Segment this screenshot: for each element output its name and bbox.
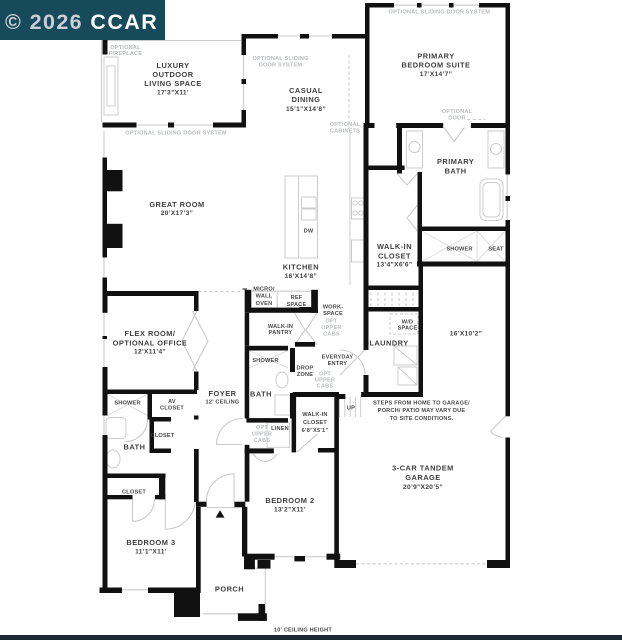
svg-text:SPACE: SPACE (287, 302, 307, 308)
svg-text:20’X17’3”: 20’X17’3” (161, 210, 193, 217)
svg-text:ZONE: ZONE (297, 372, 313, 378)
svg-text:SHOWER: SHOWER (114, 401, 140, 407)
svg-text:OPTIONAL SLIDING DOOR SYSTEM: OPTIONAL SLIDING DOOR SYSTEM (389, 10, 491, 16)
svg-text:BATH: BATH (124, 443, 146, 452)
svg-text:WALK-IN: WALK-IN (268, 324, 293, 330)
svg-text:SHOWER: SHOWER (252, 358, 278, 364)
svg-text:13’4”X6’6”: 13’4”X6’6” (377, 262, 413, 269)
svg-text:UPPER: UPPER (321, 325, 341, 331)
svg-text:DINING: DINING (292, 95, 321, 104)
svg-text:MICRO/: MICRO/ (253, 286, 275, 292)
svg-text:WALK-IN: WALK-IN (302, 412, 327, 418)
svg-text:FIREPLACE: FIREPLACE (109, 51, 143, 57)
svg-text:© 2026 CCAR: © 2026 CCAR (5, 10, 158, 34)
svg-text:BEDROOM SUITE: BEDROOM SUITE (402, 60, 471, 69)
svg-text:10’ CEILING HEIGHT: 10’ CEILING HEIGHT (274, 628, 332, 634)
svg-text:13’2”X11’: 13’2”X11’ (274, 507, 306, 514)
svg-text:BEDROOM 3: BEDROOM 3 (126, 538, 175, 547)
svg-text:12’X11’4”: 12’X11’4” (134, 349, 166, 356)
svg-text:PORCH: PORCH (215, 585, 244, 594)
svg-text:KITCHEN: KITCHEN (283, 263, 319, 272)
svg-text:WORK-: WORK- (323, 305, 344, 311)
svg-text:12’ CEILING: 12’ CEILING (206, 400, 240, 406)
svg-text:DOOR SYSTEM: DOOR SYSTEM (259, 63, 303, 69)
svg-text:FOYER: FOYER (209, 389, 237, 398)
svg-text:CABS: CABS (317, 384, 334, 390)
svg-text:PRIMARY: PRIMARY (437, 157, 474, 166)
svg-text:PORCH/ PATIO MAY VARY DUE: PORCH/ PATIO MAY VARY DUE (378, 408, 466, 414)
svg-text:OPTIONAL SLIDING: OPTIONAL SLIDING (252, 56, 308, 62)
svg-text:OPTIONAL OFFICE: OPTIONAL OFFICE (113, 338, 188, 347)
svg-text:OPTIONAL: OPTIONAL (442, 109, 473, 115)
svg-text:SEAT: SEAT (488, 247, 504, 253)
svg-text:ENTRY: ENTRY (328, 361, 348, 367)
svg-text:LUXURY: LUXURY (156, 61, 189, 70)
svg-text:OPTIONAL SLIDING DOOR SYSTEM: OPTIONAL SLIDING DOOR SYSTEM (125, 131, 227, 137)
svg-text:BEDROOM 2: BEDROOM 2 (265, 496, 314, 505)
svg-text:CABS: CABS (323, 332, 340, 338)
svg-text:OPTIONAL: OPTIONAL (330, 122, 361, 128)
svg-text:OUTDOOR: OUTDOOR (152, 70, 193, 79)
svg-text:STEPS FROM HOME TO GARAGE/: STEPS FROM HOME TO GARAGE/ (373, 401, 470, 407)
svg-text:UP: UP (347, 406, 355, 412)
svg-text:UPPER: UPPER (252, 432, 272, 438)
svg-text:CLOSET: CLOSET (303, 420, 327, 426)
svg-text:DOOR: DOOR (448, 116, 466, 122)
svg-text:BATH: BATH (250, 390, 272, 399)
svg-text:3-CAR TANDEM: 3-CAR TANDEM (392, 464, 454, 473)
svg-text:LAUNDRY: LAUNDRY (369, 339, 408, 348)
svg-text:15’1”X14’8”: 15’1”X14’8” (286, 106, 326, 113)
svg-text:CLOSET: CLOSET (151, 433, 175, 439)
svg-text:DW: DW (304, 229, 314, 235)
svg-text:OPT: OPT (256, 425, 268, 431)
svg-text:SPACE: SPACE (323, 311, 343, 317)
svg-text:REF: REF (291, 295, 303, 301)
svg-text:6’8”X5’1”: 6’8”X5’1” (302, 428, 329, 434)
svg-text:LIVING SPACE: LIVING SPACE (144, 79, 202, 88)
svg-text:BATH: BATH (445, 166, 467, 175)
svg-text:17’3”X11’: 17’3”X11’ (157, 89, 189, 96)
svg-text:DROP: DROP (297, 366, 314, 372)
svg-text:CASUAL: CASUAL (289, 86, 323, 95)
svg-text:11’1”X11’: 11’1”X11’ (135, 549, 167, 556)
svg-text:CLOSET: CLOSET (378, 251, 411, 260)
svg-text:TO SITE CONDITIONS.: TO SITE CONDITIONS. (390, 416, 454, 422)
svg-text:CABS: CABS (254, 438, 271, 444)
svg-text:16’X14’8”: 16’X14’8” (285, 273, 317, 280)
svg-text:PRIMARY: PRIMARY (417, 51, 454, 60)
svg-text:20’9”X20’5”: 20’9”X20’5” (403, 484, 443, 491)
svg-text:SPACE: SPACE (398, 326, 418, 332)
svg-text:CLOSET: CLOSET (122, 490, 146, 496)
svg-text:WALK-IN: WALK-IN (377, 242, 412, 251)
svg-text:LINEN: LINEN (271, 426, 289, 432)
svg-text:GREAT ROOM: GREAT ROOM (149, 200, 204, 209)
svg-text:OVEN: OVEN (256, 301, 273, 307)
svg-text:CLOSET: CLOSET (160, 405, 184, 411)
svg-text:GARAGE: GARAGE (405, 473, 440, 482)
svg-text:16’X10’2”: 16’X10’2” (450, 331, 482, 338)
svg-text:17’X14’7”: 17’X14’7” (420, 71, 452, 78)
svg-text:PANTRY: PANTRY (269, 330, 293, 336)
svg-text:WALL: WALL (256, 294, 273, 300)
svg-text:CABINETS: CABINETS (330, 129, 360, 135)
svg-text:SHOWER: SHOWER (446, 247, 472, 253)
svg-text:FLEX ROOM/: FLEX ROOM/ (125, 329, 176, 338)
svg-text:EVERYDAY: EVERYDAY (322, 355, 354, 361)
svg-text:OPT: OPT (325, 319, 337, 325)
svg-text:AV: AV (168, 399, 176, 405)
